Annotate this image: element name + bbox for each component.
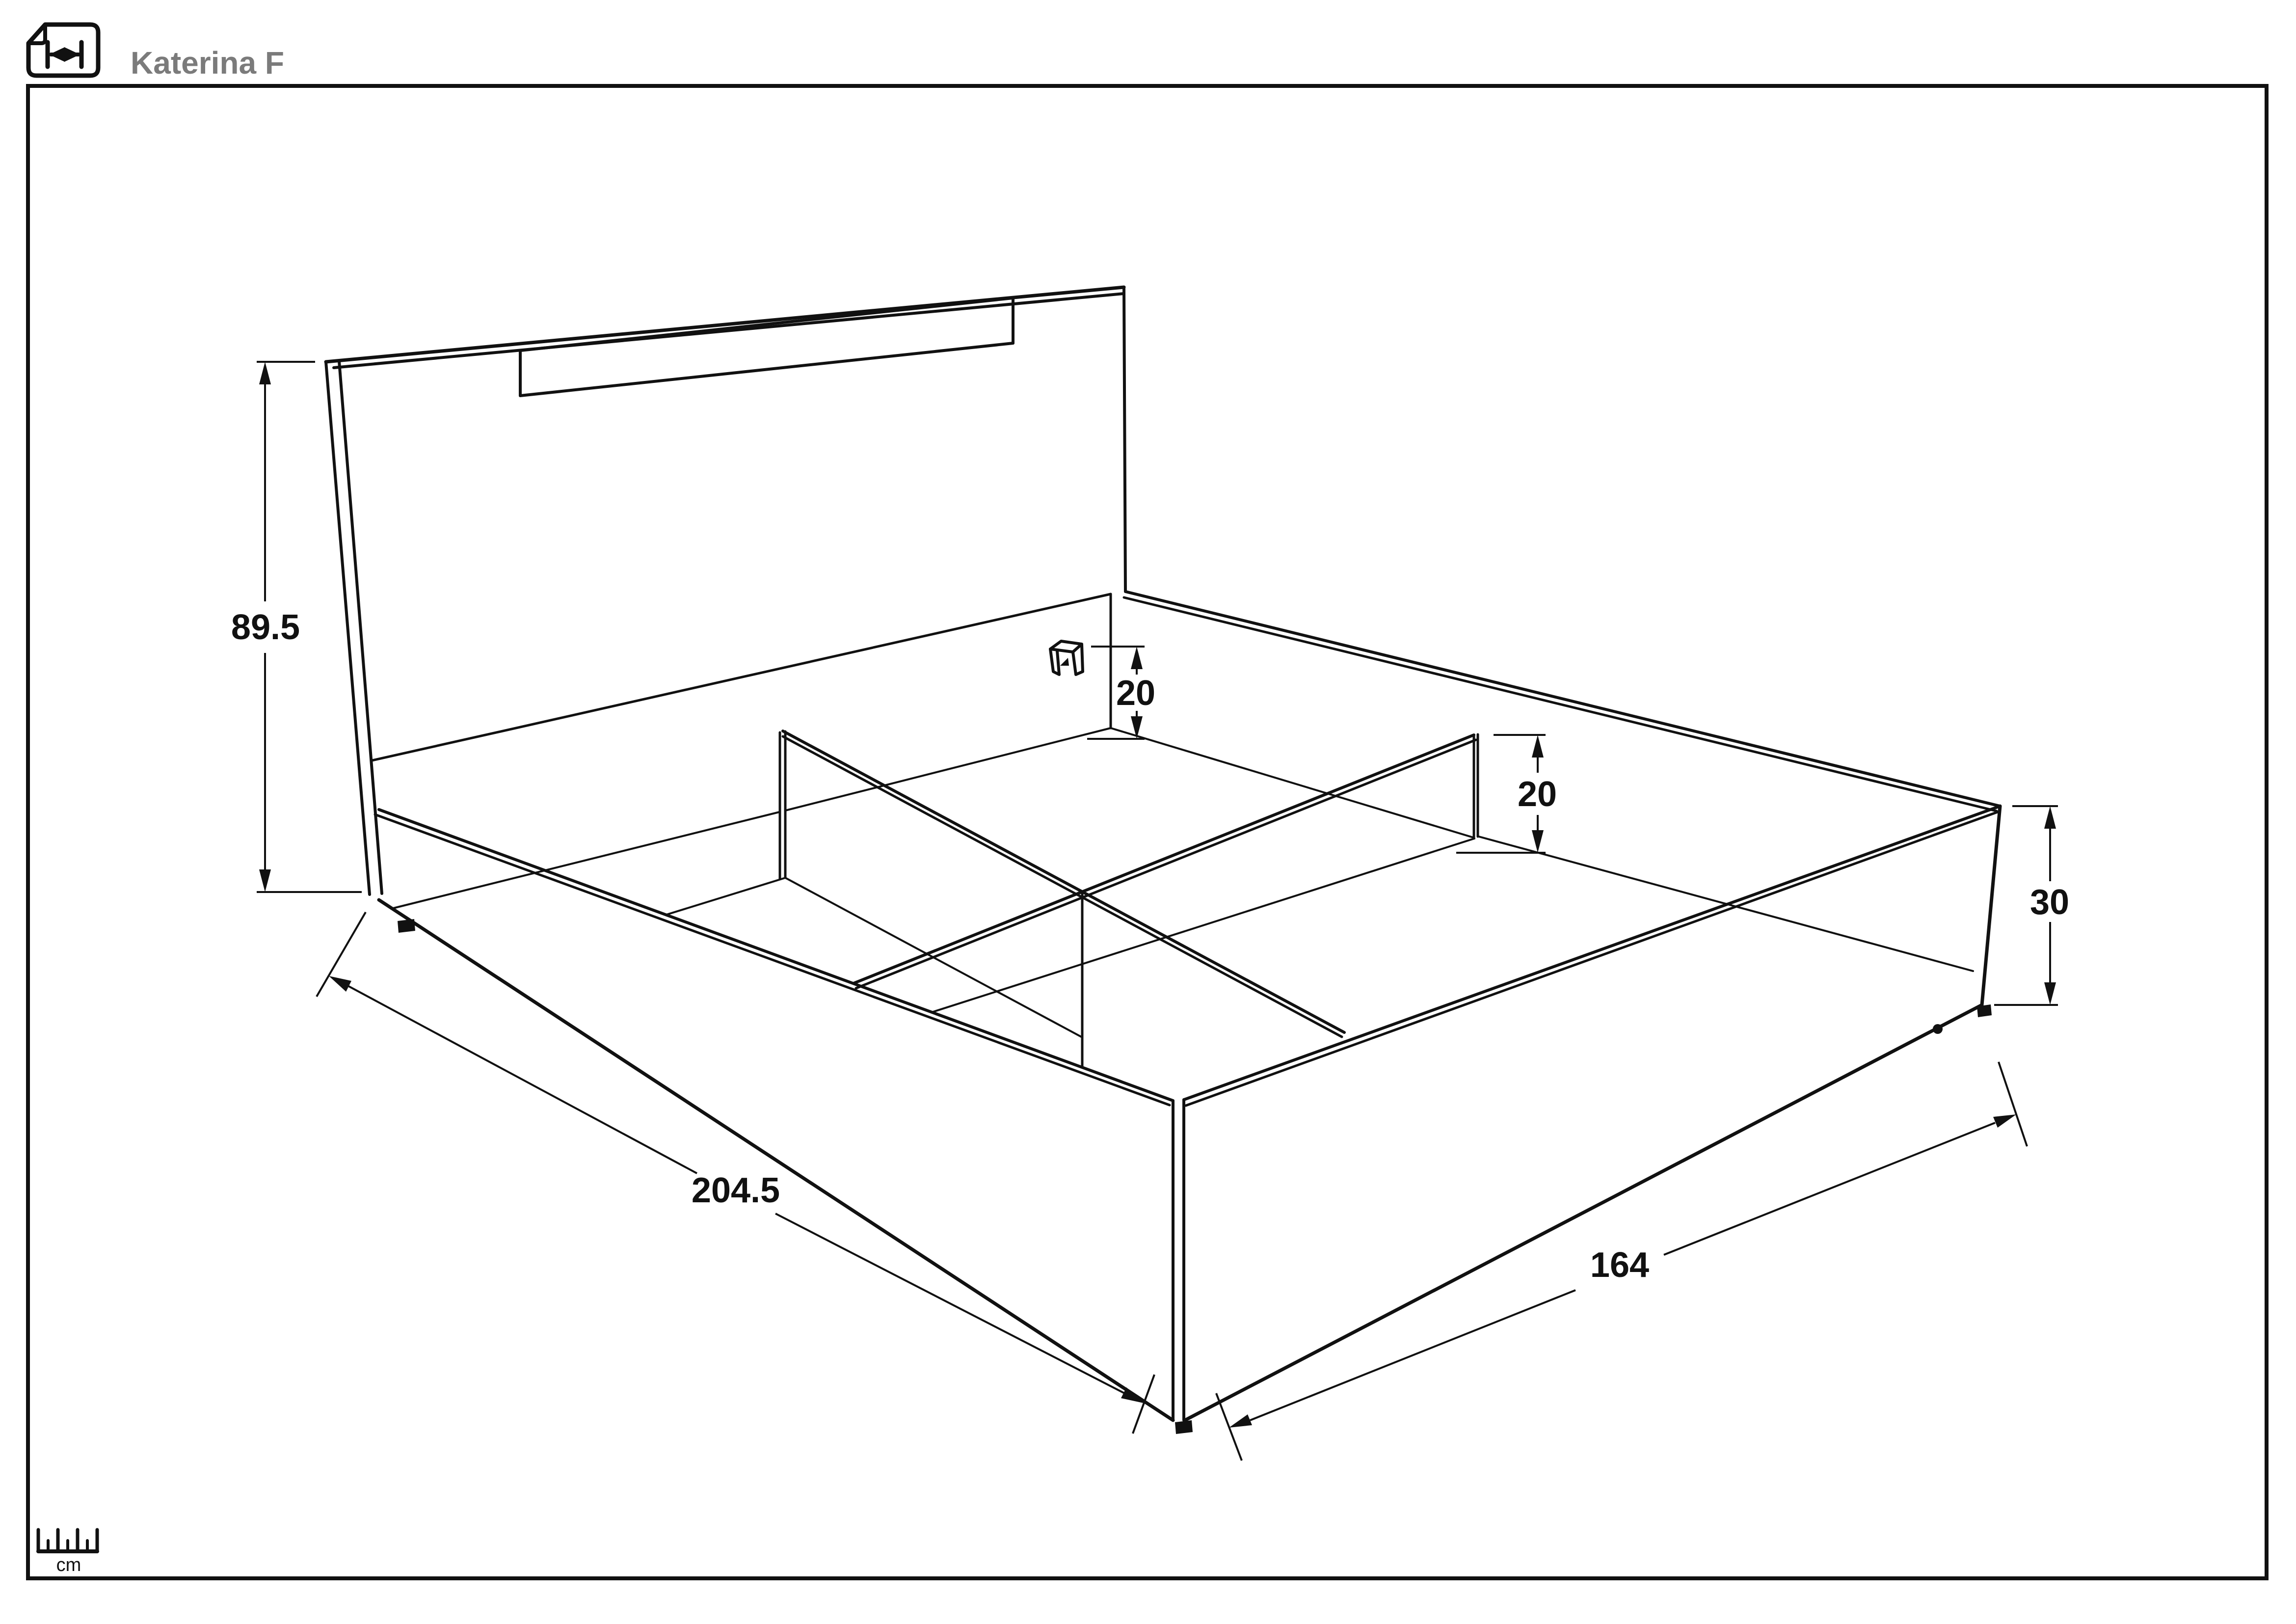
far-wall-top-outer: [1125, 592, 2000, 806]
dim-divider-height-foot: 20: [1456, 735, 1557, 853]
left-wall-top-outer: [379, 810, 1173, 1101]
unit-label: cm: [56, 1555, 81, 1575]
storage-box: [372, 592, 2000, 1420]
foot-wall-top-outer: [1184, 806, 2000, 1100]
dim-label-20-head: 20: [1116, 674, 1155, 713]
dim-label-30: 30: [2030, 883, 2069, 922]
divider-b-top-inner: [856, 740, 1476, 988]
far-wall-top-inner: [1124, 597, 1997, 811]
ruler-icon: [38, 1530, 97, 1551]
dim-bed-width: 164: [1216, 1062, 2027, 1461]
dim-label-204-5: 204.5: [692, 1171, 780, 1210]
foot-right-corner: [1977, 1004, 1992, 1017]
headboard-right-edge: [1124, 287, 1125, 592]
dimension-drawing: Katerina F: [0, 0, 2296, 1624]
foot-front-corner: [1175, 1420, 1193, 1434]
drawing-sheet: Katerina F: [0, 0, 2296, 1624]
divider-lengthwise: [667, 731, 1344, 1037]
dimensions: 89.5 20 20: [231, 362, 2069, 1461]
foot-glide: [1933, 1024, 1943, 1034]
dim-box-height: 30: [1994, 806, 2069, 1005]
divider-b-top-outer: [854, 735, 1474, 983]
bed-frame-drawing: [326, 287, 2000, 1434]
divider-a-top-inner: [783, 736, 1342, 1037]
left-wall-top-inner: [375, 814, 1170, 1105]
dim-divider-height-head: 20: [1087, 647, 1155, 739]
dim-bed-length: 204.5: [317, 912, 1154, 1434]
headboard-top-edge-inner: [334, 294, 1124, 368]
dim-headboard-height: 89.5: [231, 362, 362, 892]
dim-label-20-foot: 20: [1518, 775, 1557, 814]
footer: cm: [38, 1530, 97, 1575]
right-corner-edge: [1982, 806, 2000, 1005]
foot-wall-bottom-edge: [1185, 1005, 1982, 1420]
headboard: [326, 287, 1125, 894]
floor-lines: [391, 728, 1973, 1012]
foot-left-corner: [398, 919, 415, 933]
headboard-groove: [520, 298, 1013, 396]
left-wall-bottom-edge: [379, 900, 1173, 1420]
header: Katerina F: [28, 25, 284, 81]
bed-feet: [398, 919, 1992, 1434]
arrowhead-right: [64, 47, 80, 62]
divider-a-end-floor-line: [667, 878, 784, 915]
dim-label-89-5: 89.5: [231, 608, 300, 647]
head-wall-top-edge: [372, 594, 1111, 760]
connector-clip-icon: [1050, 641, 1083, 675]
page-width-arrow-icon: [28, 25, 98, 76]
headboard-left-edge-outer: [326, 362, 370, 894]
arrowhead-left: [49, 47, 65, 62]
page-title: Katerina F: [131, 45, 284, 81]
dim-label-164: 164: [1590, 1245, 1649, 1285]
